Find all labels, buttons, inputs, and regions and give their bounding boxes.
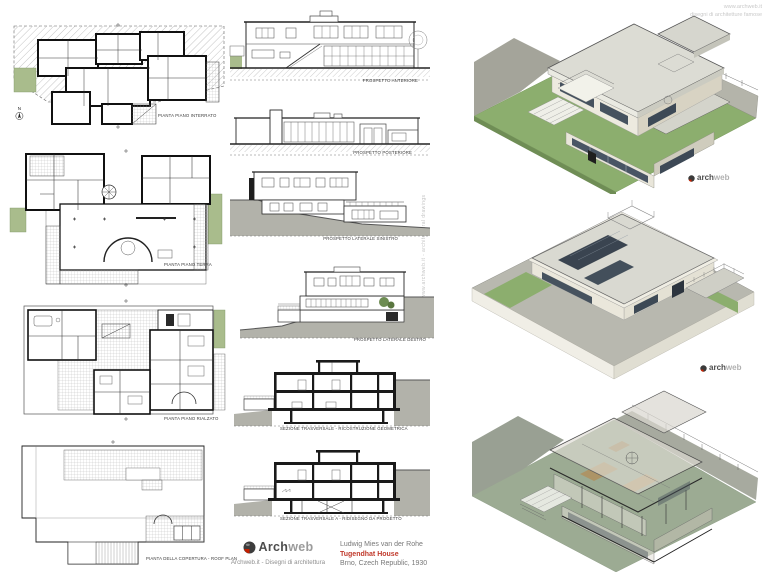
- front-elevation: PROSPETTO ANTERIORE: [228, 6, 432, 86]
- right-side-elevation-drawing: [238, 266, 436, 344]
- archweb-render-watermark: archweb: [688, 174, 729, 182]
- ground-floor-plan-label: PIANTA PIANO TERRA: [164, 262, 212, 267]
- left-side-elevation: PROSPETTO LATERALE SINISTRO: [228, 166, 432, 244]
- logo-tagline: Archweb.it - Disegni di architettura: [230, 559, 326, 566]
- right-side-elevation: PROSPETTO LATERALE DESTRO: [238, 266, 436, 344]
- left-side-elevation-label: PROSPETTO LATERALE SINISTRO: [323, 236, 398, 241]
- archweb-mini-logo-icon: [700, 365, 707, 372]
- ground-floor-plan-drawing: [8, 148, 230, 288]
- north-arrow-icon: N: [16, 106, 23, 120]
- archweb-mini-logo-icon: [688, 175, 695, 182]
- watermark-arch-text: arch: [697, 173, 714, 182]
- project-name: Tugendhat House: [340, 550, 427, 560]
- axonometric-render-xray: [462, 378, 762, 572]
- drawing-sheet: www.archweb.it disegni di architetture f…: [0, 0, 768, 576]
- cross-section-geometric-label: SEZIONE TRASVERSALE - RICOSTRUZIONE GEOM…: [280, 426, 408, 431]
- title-block: Ludwig Mies van der Rohe Tugendhat House…: [340, 540, 427, 569]
- architect-name: Ludwig Mies van der Rohe: [340, 540, 427, 550]
- archweb-logo-icon: [243, 541, 256, 554]
- watermark-arch-text: arch: [709, 363, 726, 372]
- upper-floor-plan-label: PIANTA PIANO RIALZATO: [164, 416, 219, 421]
- cross-section-geometric: SEZIONE TRASVERSALE - RICOSTRUZIONE GEOM…: [232, 356, 432, 434]
- right-side-elevation-label: PROSPETTO LATERALE DESTRO: [354, 337, 426, 342]
- cross-section-project: SEZIONE TRASVERSALE A - RIDISEGNO DA PRO…: [232, 446, 432, 524]
- axonometric-render-garden-side-drawing: [462, 4, 762, 194]
- left-side-elevation-drawing: [228, 166, 432, 244]
- front-elevation-drawing: [228, 6, 432, 86]
- watermark-web-text: web: [714, 173, 730, 182]
- front-elevation-label: PROSPETTO ANTERIORE: [363, 78, 418, 83]
- watermark-web-text: web: [726, 363, 742, 372]
- logo-web-text: web: [288, 540, 313, 554]
- axonometric-render-street-side-drawing: [462, 196, 762, 382]
- rear-elevation-label: PROSPETTO POSTERIORE: [353, 150, 412, 155]
- upper-floor-plan: PIANTA PIANO RIALZATO: [8, 296, 230, 426]
- roof-plan-label: PIANTA DELLA COPERTURA - ROOF PLAN: [146, 556, 237, 561]
- ground-floor-plan: PIANTA PIANO TERRA: [8, 148, 230, 288]
- axonometric-render-street-side: archweb: [462, 196, 762, 382]
- cross-section-geometric-drawing: [232, 356, 432, 434]
- logo-arch-text: Arch: [259, 540, 289, 554]
- basement-floor-plan: N PIANTA PIANO INTERRATO: [8, 22, 230, 130]
- project-location: Brno, Czech Republic, 1930: [340, 559, 427, 569]
- roof-plan-drawing: [8, 438, 230, 570]
- axonometric-render-garden-side: archweb: [462, 4, 762, 194]
- axonometric-render-xray-drawing: [462, 378, 762, 572]
- cross-section-project-drawing: [232, 446, 432, 524]
- roof-plan: PIANTA DELLA COPERTURA - ROOF PLAN: [8, 438, 230, 570]
- archweb-render-watermark: archweb: [700, 364, 741, 372]
- archweb-logo: Archweb Archweb.it - Disegni di architet…: [230, 538, 326, 566]
- cross-section-project-label: SEZIONE TRASVERSALE A - RIDISEGNO DA PRO…: [280, 516, 402, 521]
- upper-floor-plan-drawing: [8, 296, 230, 426]
- north-label: N: [18, 106, 21, 111]
- basement-plan-label: PIANTA PIANO INTERRATO: [158, 113, 216, 118]
- rear-elevation: PROSPETTO POSTERIORE: [228, 106, 432, 158]
